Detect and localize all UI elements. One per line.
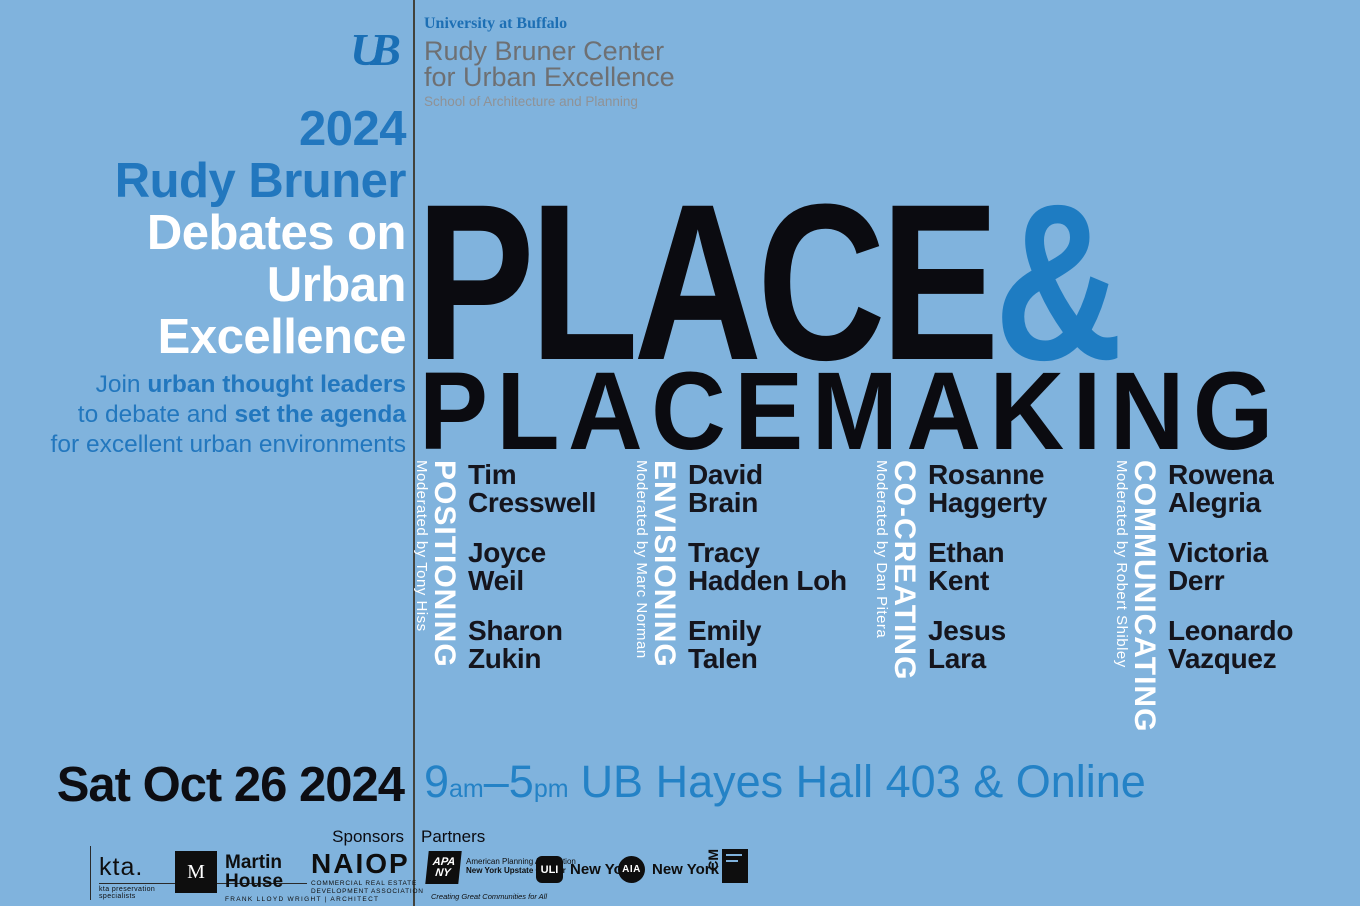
vertical-divider [413,0,415,906]
speaker-name: EthanKent [928,539,1047,595]
uli-mark-icon: ULI [536,856,563,883]
header-text: University at Buffalo Rudy Bruner Center… [424,16,675,109]
moderator-label: Moderated by Robert Shibley [1114,460,1128,668]
year-text: 2024 [0,103,406,155]
speaker-name: SharonZukin [468,617,596,673]
aia-mark-icon: AIA [618,856,645,883]
martin-house-mark-icon: M [175,851,217,893]
panel-positioning: Moderated by Tony Hiss POSITIONING TimCr… [414,460,596,695]
kta-logo: kta. kta preservation specialists [90,846,177,900]
tagline-line-3: for excellent urban environments [0,430,406,460]
school-name: School of Architecture and Planning [424,95,675,109]
speaker-list: RosanneHaggerty EthanKent JesusLara [928,460,1047,695]
center-name-line1: Rudy Bruner Center [424,38,675,64]
speaker-list: DavidBrain TracyHadden Loh EmilyTalen [688,460,847,695]
speaker-name: LeonardoVazquez [1168,617,1293,673]
speaker-name: JesusLara [928,617,1047,673]
panel-co-creating: Moderated by Dan Pitera CO-CREATING Rosa… [874,460,1047,695]
tagline-line-2: to debate and set the agenda [0,400,406,430]
apa-mark-icon: APA NY [425,851,461,884]
cm-mark-text: CM [707,849,720,871]
cm-mark-icon [722,849,748,883]
series-title-line1: Debates on [0,207,406,259]
aia-logo: AIA New York [618,856,719,883]
partners-label: Partners [421,827,485,847]
speaker-name: VictoriaDerr [1168,539,1293,595]
speaker-name: RowenaAlegria [1168,461,1293,517]
event-poster: UB University at Buffalo Rudy Bruner Cen… [0,0,1360,906]
panel-communicating: Moderated by Robert Shibley COMMUNICATIN… [1114,460,1293,732]
category-label: POSITIONING [430,460,459,668]
speaker-name: EmilyTalen [688,617,847,673]
tagline: Join urban thought leaders to debate and… [0,370,406,460]
speaker-name: TracyHadden Loh [688,539,847,595]
series-title-line3: Excellence [0,311,406,363]
university-name: University at Buffalo [424,16,675,32]
naiop-logo: NAIOP COMMERCIAL REAL ESTATEDEVELOPMENT … [311,850,424,896]
series-title-line2: Urban [0,259,406,311]
moderator-label: Moderated by Marc Norman [634,460,648,659]
speaker-name: DavidBrain [688,461,847,517]
speaker-name: TimCresswell [468,461,596,517]
event-location: UB Hayes Hall 403 & Online [581,756,1146,807]
ub-logo-icon: UB [350,30,410,70]
tagline-line-1: Join urban thought leaders [0,370,406,400]
category-label: COMMUNICATING [1130,460,1159,732]
series-headline: 2024 Rudy Bruner Debates on Urban Excell… [0,103,406,460]
event-time-location: 9am–5pmUB Hayes Hall 403 & Online [424,756,1146,808]
category-label: CO-CREATING [890,460,919,680]
moderator-label: Moderated by Dan Pitera [874,460,888,638]
main-title-line2: PLACEMAKING [419,357,1282,467]
cm-partner-logo: CM [707,849,748,883]
speaker-list: RowenaAlegria VictoriaDerr LeonardoVazqu… [1168,460,1293,695]
category-label: ENVISIONING [650,460,679,668]
center-name-line2: for Urban Excellence [424,64,675,90]
panel-envisioning: Moderated by Marc Norman ENVISIONING Dav… [634,460,847,695]
series-name: Rudy Bruner [0,155,406,207]
moderator-label: Moderated by Tony Hiss [414,460,428,632]
event-date: Sat Oct 26 2024 [0,757,404,813]
sponsors-label: Sponsors [0,827,404,847]
speaker-name: JoyceWeil [468,539,596,595]
speaker-list: TimCresswell JoyceWeil SharonZukin [468,460,596,695]
speaker-name: RosanneHaggerty [928,461,1047,517]
